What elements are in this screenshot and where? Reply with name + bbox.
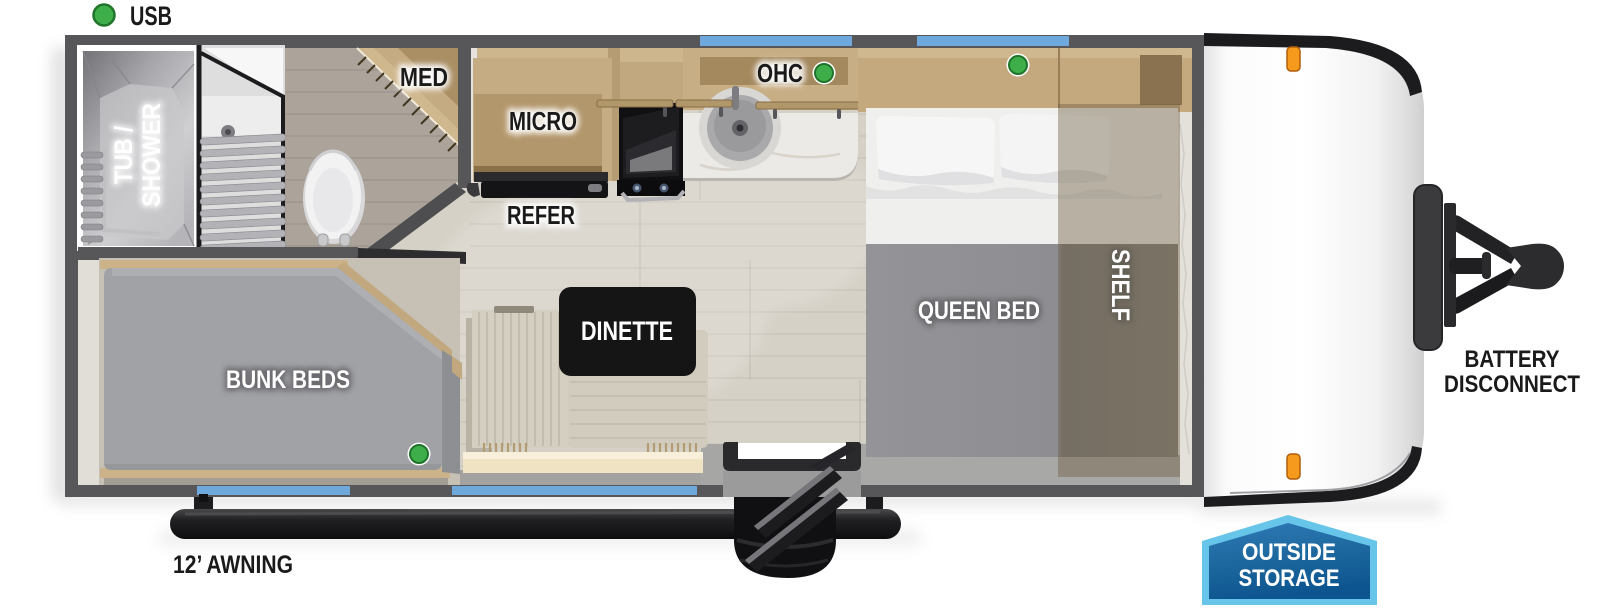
svg-text:BUNK BEDS: BUNK BEDS xyxy=(226,366,350,394)
svg-text:STORAGE: STORAGE xyxy=(1239,565,1340,592)
svg-text:MED: MED xyxy=(400,62,448,92)
svg-text:OHC: OHC xyxy=(757,58,803,88)
svg-text:SHOWER: SHOWER xyxy=(138,103,166,207)
svg-text:DISCONNECT: DISCONNECT xyxy=(1444,371,1580,398)
svg-text:BATTERY: BATTERY xyxy=(1465,346,1560,373)
svg-text:REFER: REFER xyxy=(507,200,575,230)
svg-text:DINETTE: DINETTE xyxy=(581,316,673,346)
svg-text:QUEEN BED: QUEEN BED xyxy=(918,297,1040,325)
svg-text:MICRO: MICRO xyxy=(509,106,577,136)
svg-text:12’ AWNING: 12’ AWNING xyxy=(173,551,293,579)
svg-text:SHELF: SHELF xyxy=(1106,249,1134,321)
svg-text:USB: USB xyxy=(130,1,172,31)
svg-text:TUB /: TUB / xyxy=(110,126,138,184)
svg-text:OUTSIDE: OUTSIDE xyxy=(1242,539,1336,566)
